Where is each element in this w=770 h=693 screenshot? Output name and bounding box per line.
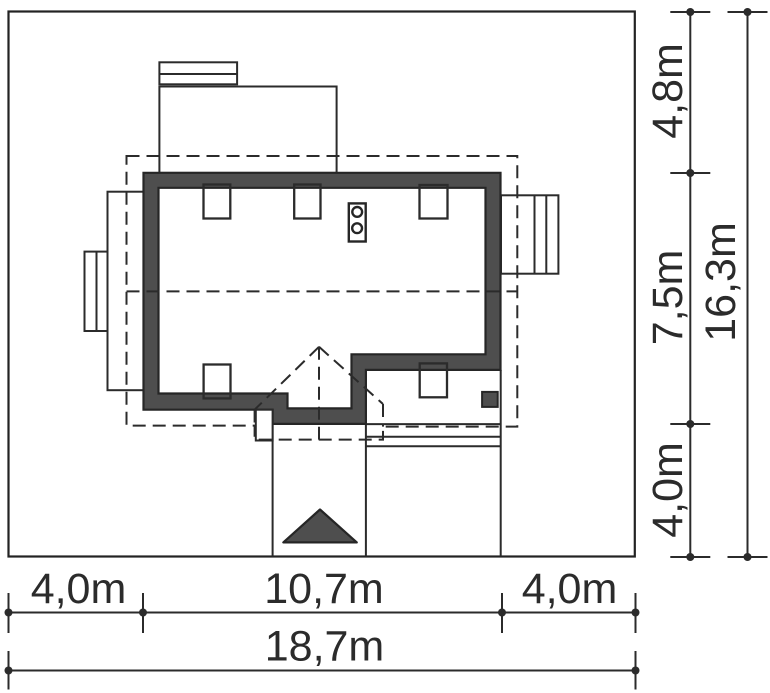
svg-text:18,7m: 18,7m xyxy=(265,623,385,671)
svg-text:4,0m: 4,0m xyxy=(31,565,127,613)
svg-text:4,0m: 4,0m xyxy=(522,565,618,613)
svg-text:7,5m: 7,5m xyxy=(644,250,692,346)
svg-text:4,0m: 4,0m xyxy=(644,442,692,538)
svg-text:10,7m: 10,7m xyxy=(264,565,384,613)
svg-text:4,8m: 4,8m xyxy=(644,43,692,139)
svg-text:16,3m: 16,3m xyxy=(697,222,745,342)
